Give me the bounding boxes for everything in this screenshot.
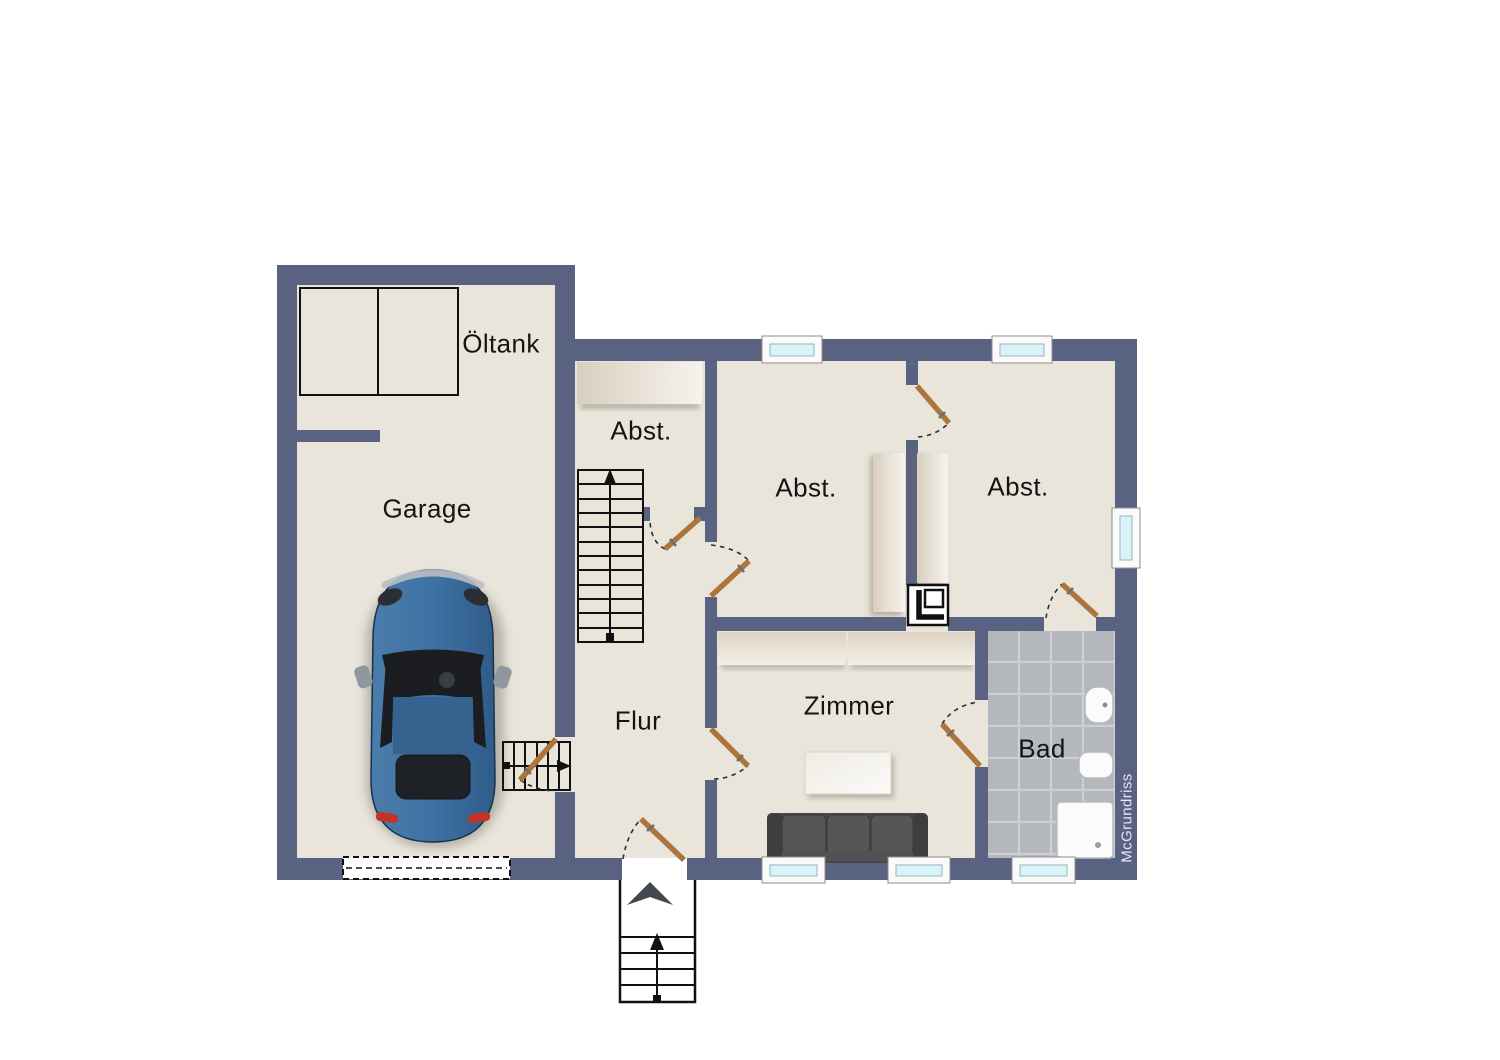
shower-drain bbox=[1095, 842, 1101, 848]
window bbox=[1112, 508, 1140, 568]
flur-label: Flur bbox=[615, 706, 661, 737]
entrance bbox=[620, 858, 695, 1003]
zimmer-cabinet-right bbox=[848, 632, 975, 665]
floor-plan-drawing bbox=[0, 0, 1500, 1060]
window bbox=[762, 857, 825, 883]
window bbox=[888, 857, 950, 883]
abst-right-cabinet bbox=[917, 453, 948, 583]
steering-wheel bbox=[439, 672, 455, 688]
windshield bbox=[382, 650, 484, 702]
shower bbox=[1057, 802, 1113, 858]
window bbox=[762, 336, 822, 363]
car bbox=[353, 570, 513, 842]
floor-plan: Öltank Garage Abst. Abst. Abst. Flur Zim… bbox=[0, 0, 1500, 1060]
abst-middle-label: Abst. bbox=[775, 473, 836, 504]
zimmer-label: Zimmer bbox=[804, 691, 895, 722]
sofa bbox=[767, 813, 928, 863]
garage-door bbox=[343, 857, 510, 879]
rear-window bbox=[396, 755, 470, 799]
sink-faucet bbox=[1103, 703, 1108, 708]
abst-left-label: Abst. bbox=[610, 416, 671, 447]
garage-label: Garage bbox=[382, 494, 471, 525]
window bbox=[992, 336, 1052, 363]
watermark: McGrundriss bbox=[1119, 773, 1136, 862]
oeltank-label: Öltank bbox=[462, 329, 540, 360]
toilet bbox=[1079, 752, 1113, 778]
sink bbox=[1085, 687, 1113, 723]
abst-left-shelf bbox=[577, 362, 702, 404]
bad-label: Bad bbox=[1018, 734, 1065, 765]
abst-middle-cabinet bbox=[873, 453, 905, 612]
window bbox=[1012, 857, 1075, 883]
zimmer-cabinet-left bbox=[718, 632, 846, 665]
chimney-icon bbox=[908, 585, 948, 625]
abst-right-label: Abst. bbox=[987, 472, 1048, 503]
zimmer-table bbox=[805, 752, 891, 794]
